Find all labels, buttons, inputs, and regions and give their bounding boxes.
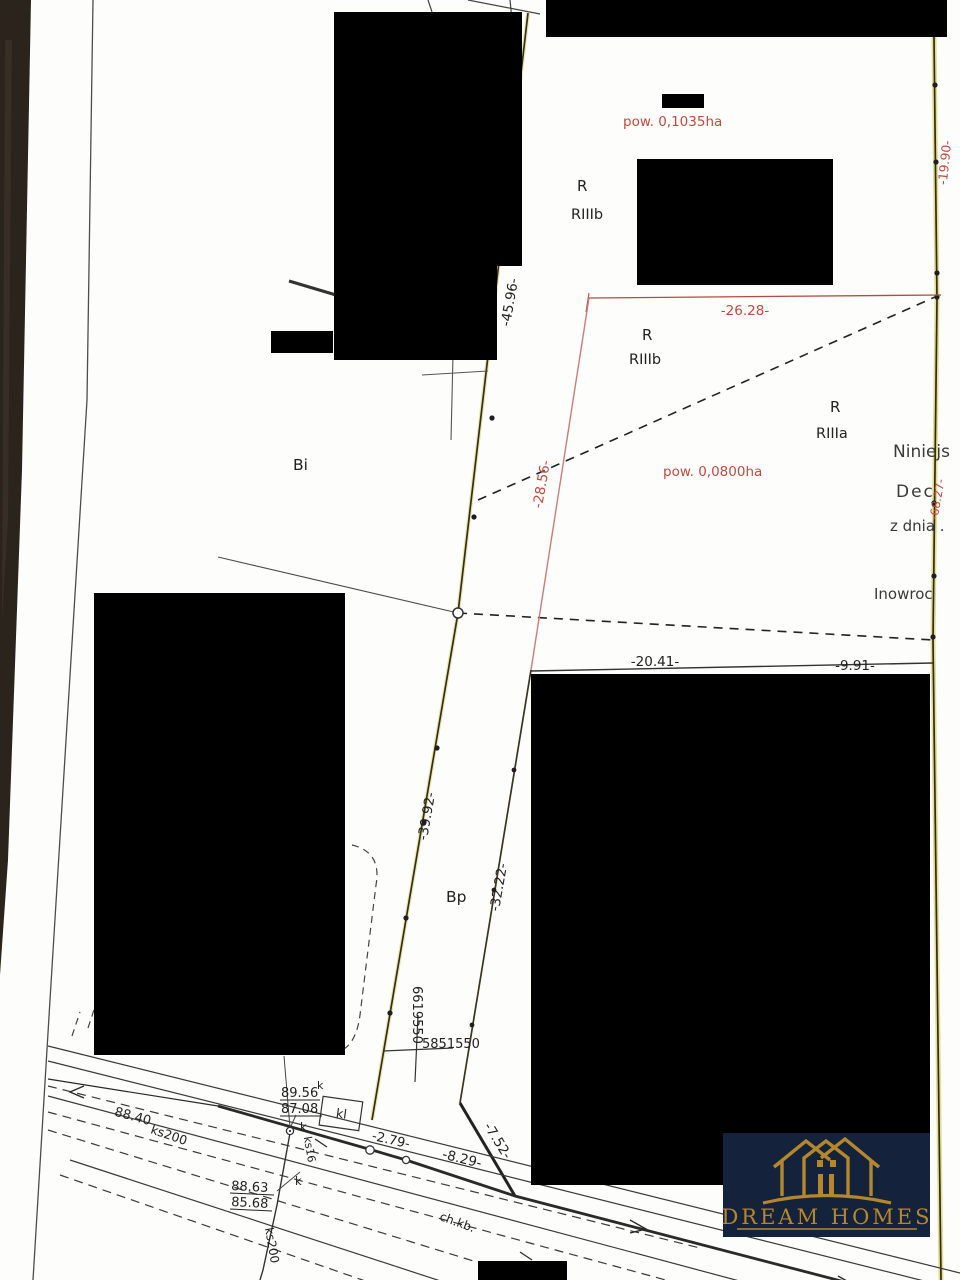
manhole-k-dot [289,1130,291,1132]
k-label-b: k [295,1174,302,1188]
dream-homes-logo: DREAM HOMES [721,1133,932,1237]
side-text-1: Niniejs [893,442,950,462]
soil-r-right: R [830,398,840,416]
boundary-node-main [453,608,463,618]
soil-rIIIb-top: RIIIb [571,207,603,223]
map-canvas: 88.1 [0,0,960,1280]
redaction-top-bar [546,0,947,37]
grid-easting: 5851550 [422,1037,480,1052]
redaction-left [94,593,345,1055]
use-label-bi: Bi [293,456,308,474]
redaction-a2 [334,260,497,360]
redaction-c [271,331,333,353]
side-text-2: Dec [896,482,935,502]
redaction-bottom-small [478,1261,567,1280]
area-mid-label: pow. 0,0800ha [663,464,762,480]
use-label-bp: Bp [446,888,466,906]
logo-brand-text: DREAM HOMES [721,1205,932,1229]
area-top-label: pow. 0,1035ha [623,114,722,130]
soil-rIIIb-mid: RIIIb [629,352,661,368]
boundary-node-b [402,1156,409,1163]
redaction-a1 [334,12,522,266]
soil-r-top: R [577,177,587,195]
k-label-a: k [300,1120,307,1134]
redaction-right [531,674,930,1185]
elev1-bottom: 87.08 [281,1102,318,1117]
side-text-4: Inowroc [874,585,933,603]
dim-bottom-short: -9.91- [835,658,875,674]
grid-northing: 6619550 [409,986,424,1044]
side-text-3: z dnia . [890,517,945,535]
elev1-sup-k: k [317,1079,324,1092]
soil-r-mid: R [642,326,652,344]
scanned-survey-map: 88.1 [0,0,960,1280]
boundary-node-a [366,1146,374,1154]
soil-rIIIa-right: RIIIa [816,426,848,442]
dim-bottom-long: -20.41- [631,654,680,670]
redaction-d [662,94,704,108]
redaction-b [637,159,833,285]
kl-box-label: kl [335,1105,348,1121]
elev1-top: 89.56 [281,1086,318,1101]
dim-top: -26.28- [721,303,770,319]
